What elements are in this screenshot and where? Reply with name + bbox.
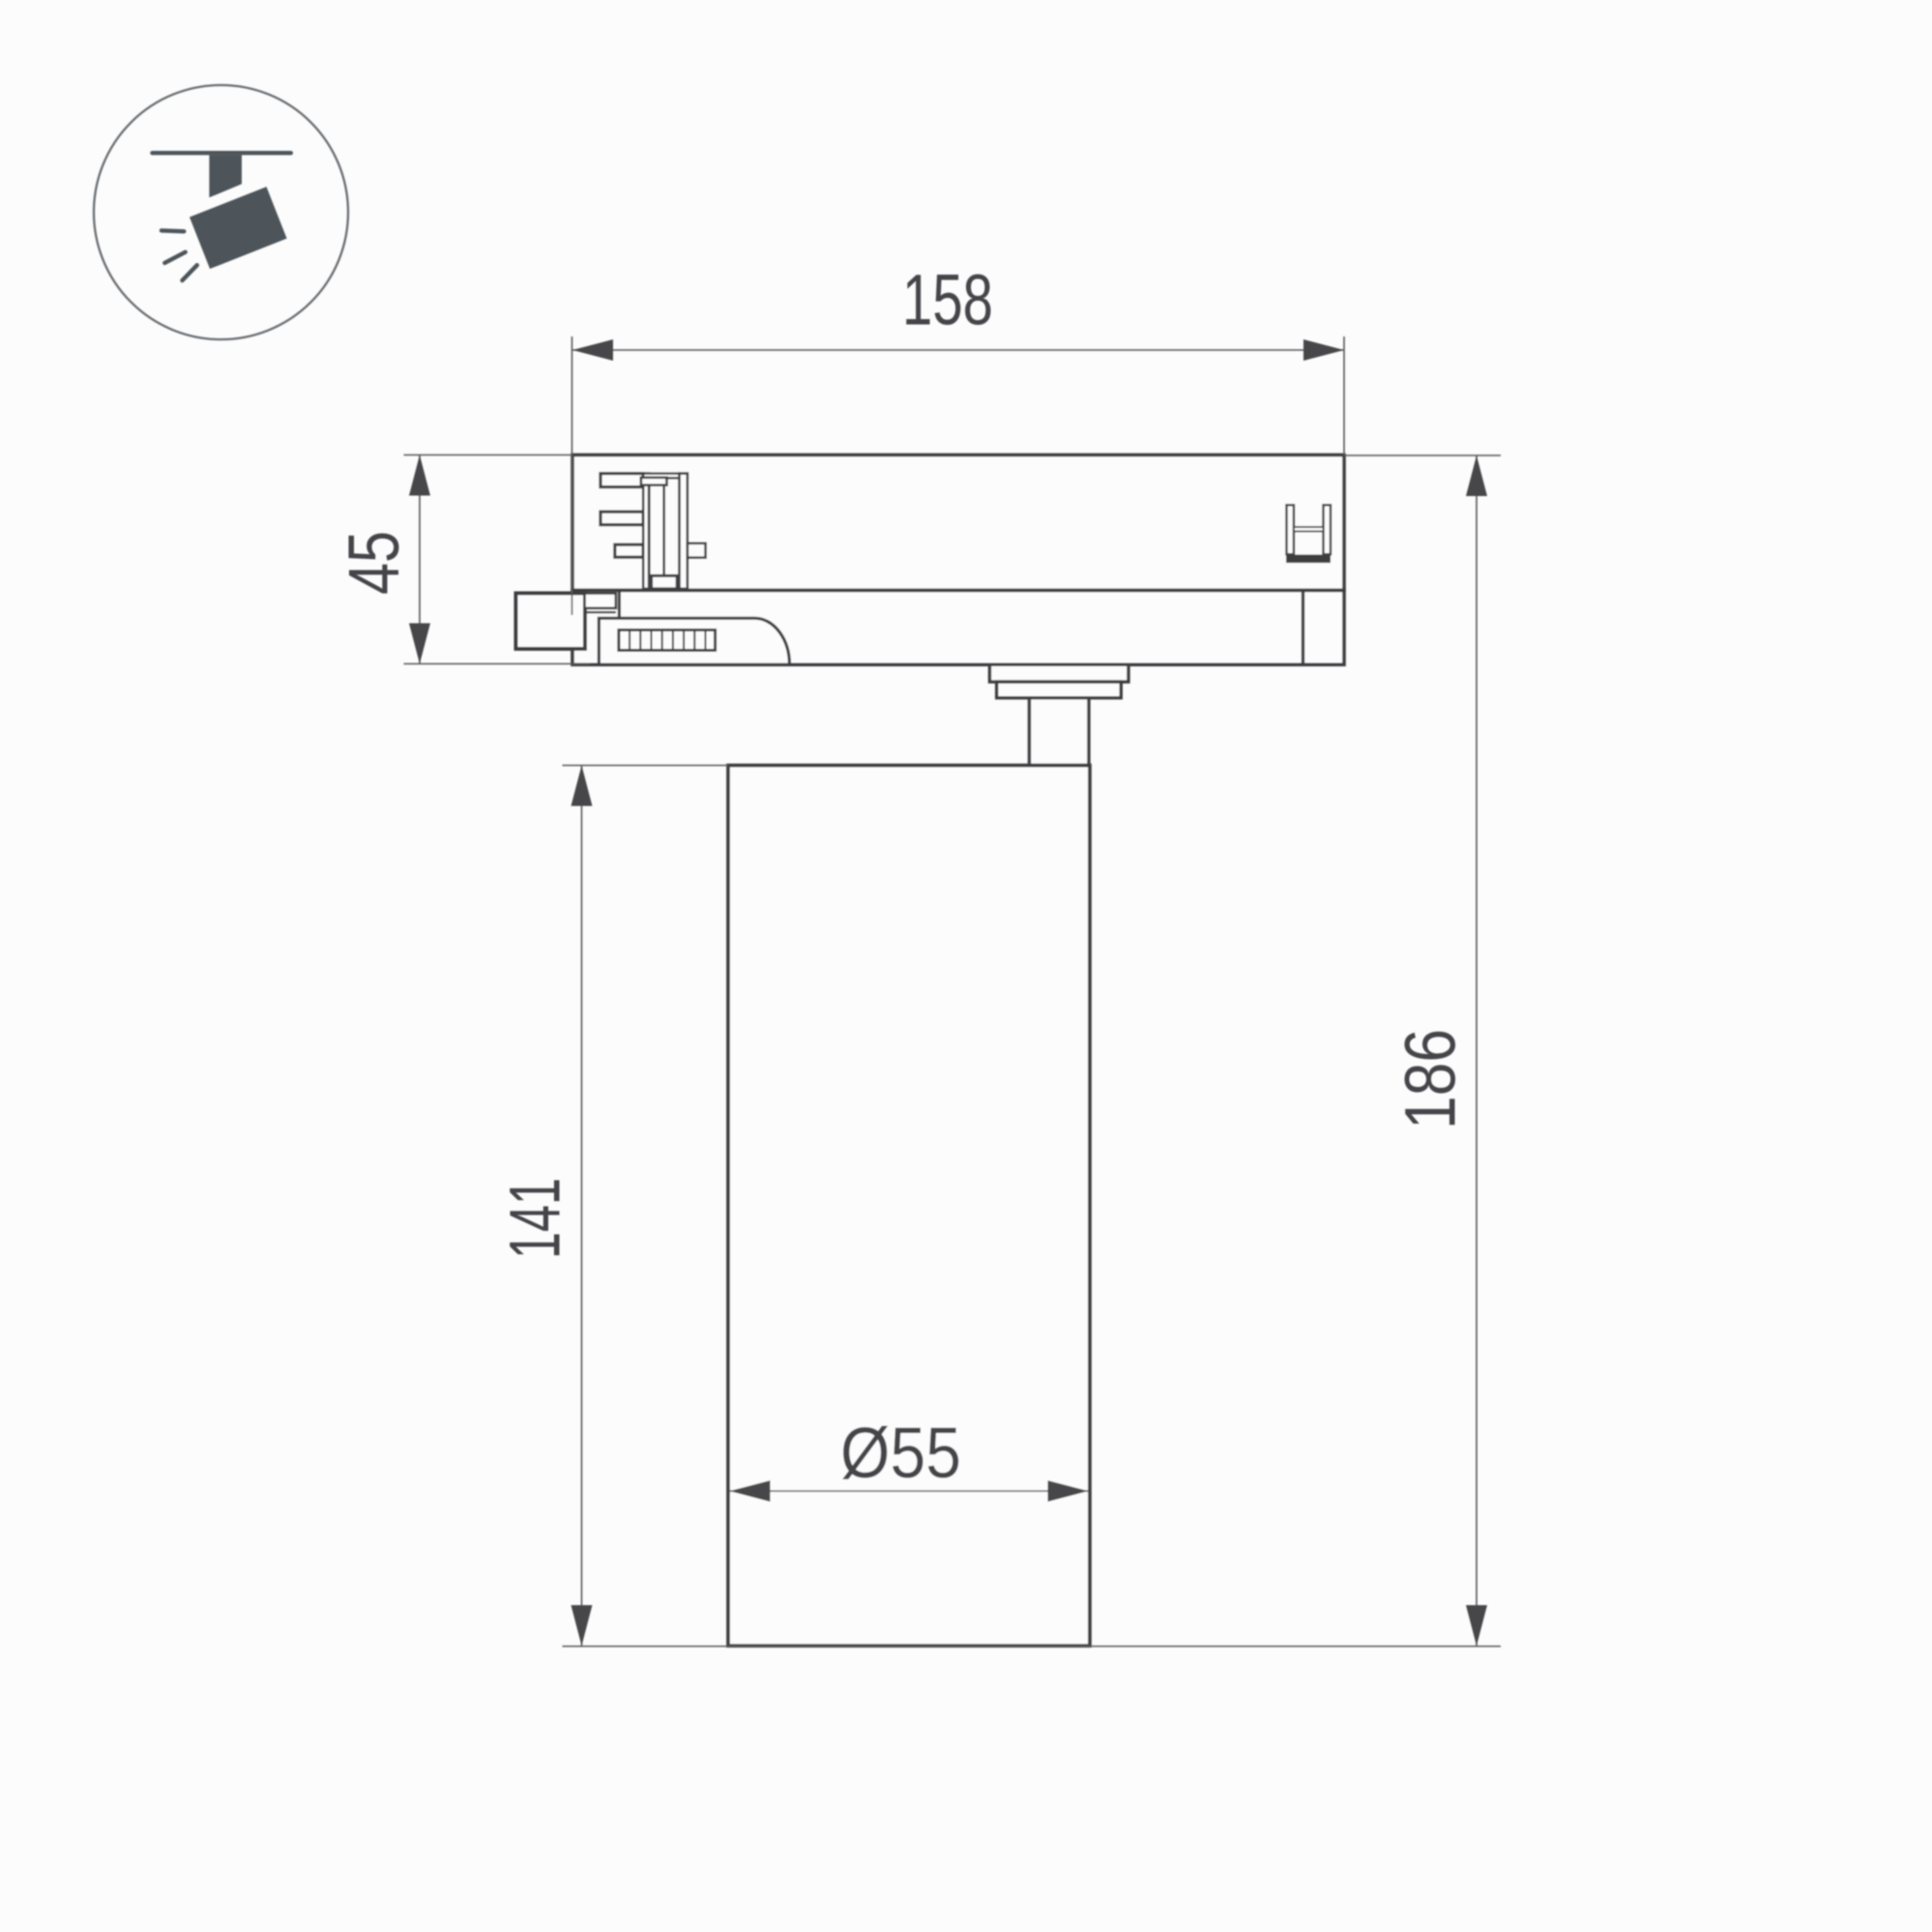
svg-text:141: 141	[495, 1178, 575, 1259]
svg-text:186: 186	[1390, 1029, 1471, 1129]
svg-text:45: 45	[334, 531, 414, 595]
svg-text:158: 158	[902, 260, 993, 340]
svg-text:Ø55: Ø55	[840, 1413, 961, 1493]
